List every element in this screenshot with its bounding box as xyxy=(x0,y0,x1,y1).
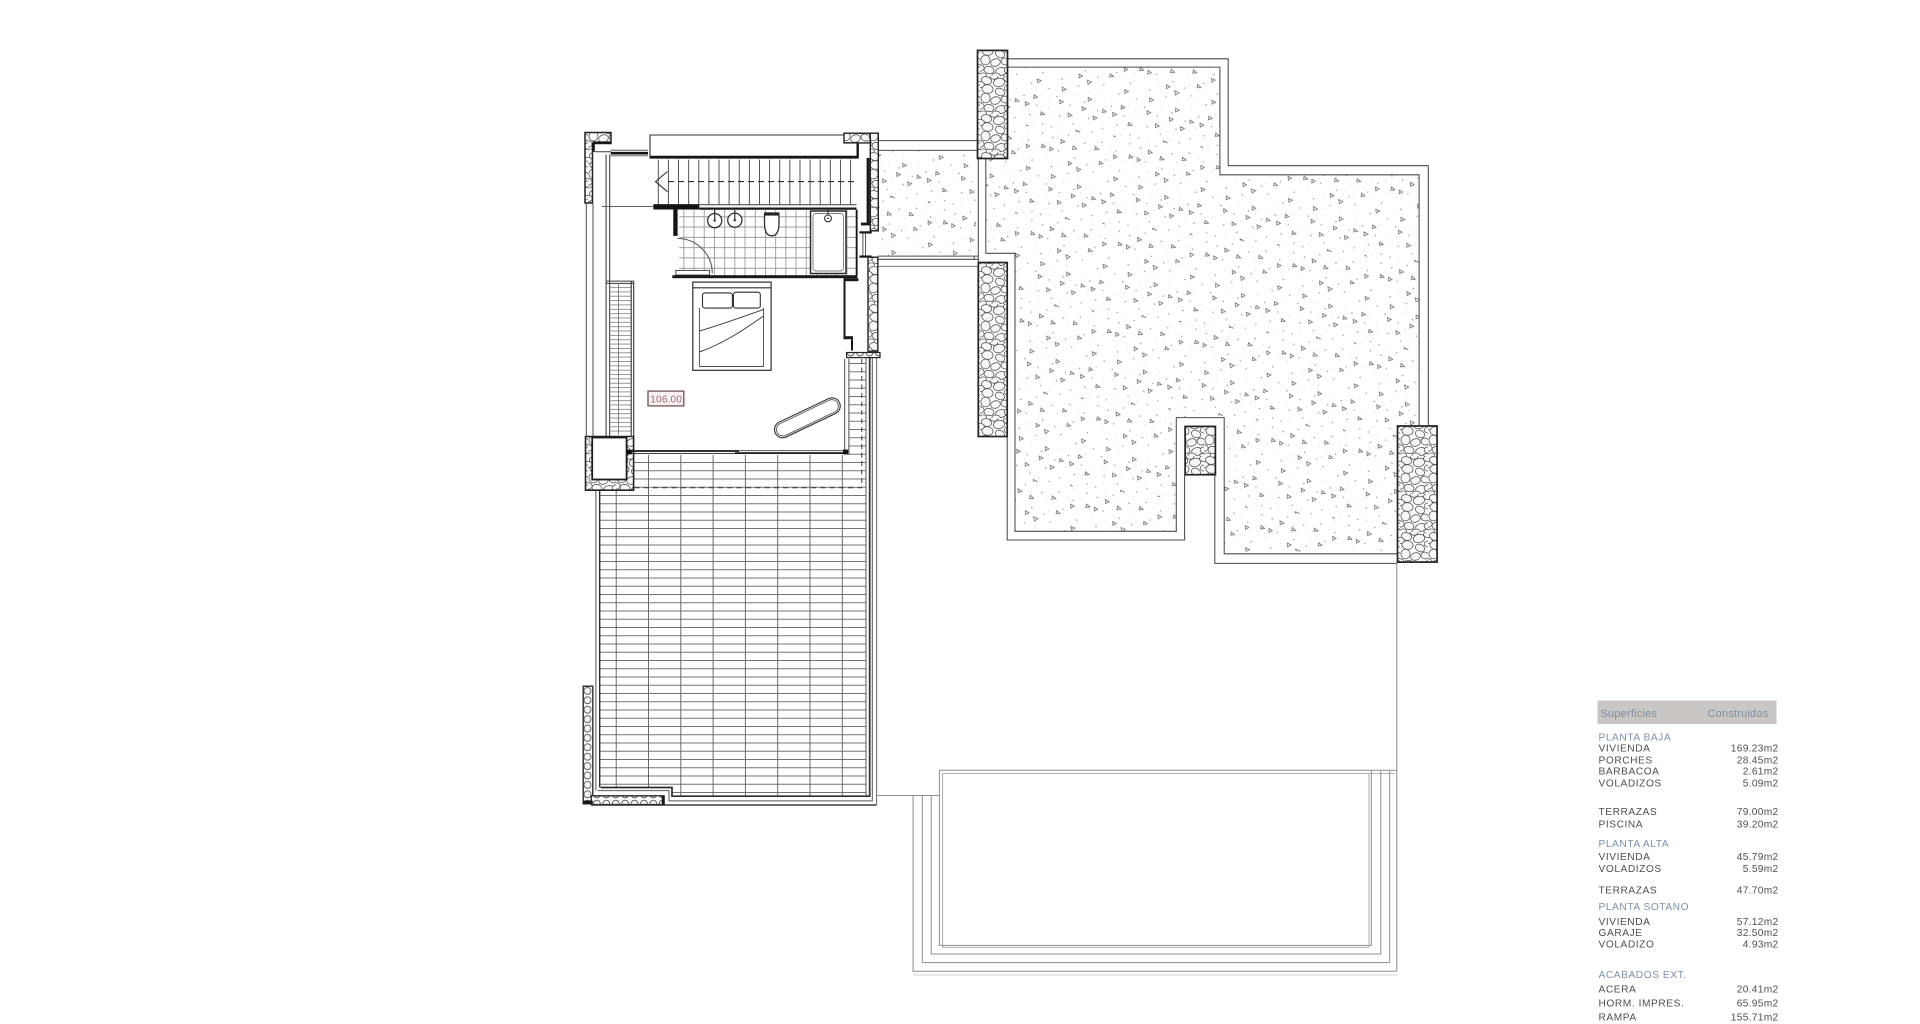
svg-text:TERRAZAS: TERRAZAS xyxy=(1599,886,1658,897)
svg-text:VIVIENDA: VIVIENDA xyxy=(1599,852,1651,863)
svg-text:79.00m2: 79.00m2 xyxy=(1737,807,1779,818)
svg-text:39.20m2: 39.20m2 xyxy=(1737,819,1779,830)
svg-text:5.09m2: 5.09m2 xyxy=(1743,779,1779,790)
svg-text:VOLADIZOS: VOLADIZOS xyxy=(1599,779,1662,790)
svg-text:BARBACOA: BARBACOA xyxy=(1599,767,1660,778)
svg-text:TERRAZAS: TERRAZAS xyxy=(1599,807,1658,818)
svg-text:5.59m2: 5.59m2 xyxy=(1743,864,1779,875)
svg-text:VIVIENDA: VIVIENDA xyxy=(1599,917,1651,928)
svg-text:155.71m2: 155.71m2 xyxy=(1731,1012,1779,1023)
svg-text:47.70m2: 47.70m2 xyxy=(1737,886,1779,897)
svg-text:65.95m2: 65.95m2 xyxy=(1737,999,1779,1010)
svg-text:32.50m2: 32.50m2 xyxy=(1737,928,1779,939)
svg-text:ACERA: ACERA xyxy=(1599,985,1637,996)
svg-text:HORM. IMPRES.: HORM. IMPRES. xyxy=(1599,999,1685,1010)
svg-text:169.23m2: 169.23m2 xyxy=(1731,744,1779,755)
svg-text:Construidas: Construidas xyxy=(1708,708,1769,720)
svg-text:57.12m2: 57.12m2 xyxy=(1737,917,1779,928)
svg-text:VIVIENDA: VIVIENDA xyxy=(1599,744,1651,755)
svg-text:ACABADOS EXT.: ACABADOS EXT. xyxy=(1599,970,1687,981)
svg-text:PORCHES: PORCHES xyxy=(1599,755,1653,766)
svg-text:4.93m2: 4.93m2 xyxy=(1743,939,1779,950)
svg-text:PLANTA SOTANO: PLANTA SOTANO xyxy=(1599,902,1690,913)
svg-text:PLANTA ALTA: PLANTA ALTA xyxy=(1599,839,1670,850)
svg-text:2.61m2: 2.61m2 xyxy=(1743,767,1779,778)
svg-text:28.45m2: 28.45m2 xyxy=(1737,755,1779,766)
svg-text:RAMPA: RAMPA xyxy=(1599,1012,1637,1023)
svg-text:Superficies: Superficies xyxy=(1601,708,1658,720)
svg-text:VOLADIZO: VOLADIZO xyxy=(1599,939,1655,950)
svg-text:GARAJE: GARAJE xyxy=(1599,928,1643,939)
svg-text:PLANTA BAJA: PLANTA BAJA xyxy=(1599,732,1672,743)
svg-text:PISCINA: PISCINA xyxy=(1599,819,1644,830)
svg-text:VOLADIZOS: VOLADIZOS xyxy=(1599,864,1662,875)
svg-text:45.79m2: 45.79m2 xyxy=(1737,852,1779,863)
svg-text:106.00: 106.00 xyxy=(650,395,682,406)
svg-text:20.41m2: 20.41m2 xyxy=(1737,985,1779,996)
